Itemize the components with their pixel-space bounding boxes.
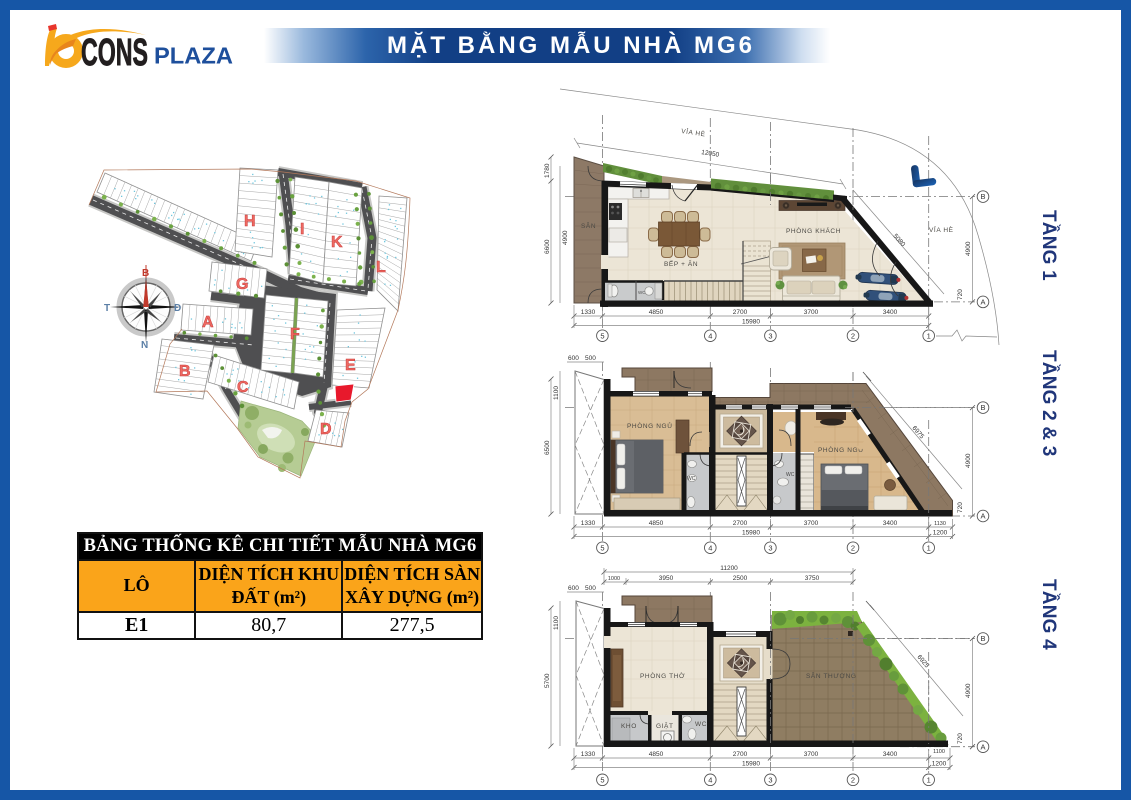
svg-text:4850: 4850 bbox=[649, 751, 664, 758]
svg-text:5700: 5700 bbox=[544, 673, 551, 688]
svg-text:B: B bbox=[179, 363, 191, 380]
svg-text:4: 4 bbox=[708, 331, 712, 340]
svg-text:3750: 3750 bbox=[805, 575, 820, 582]
svg-text:PHÒNG NGỦ: PHÒNG NGỦ bbox=[818, 445, 864, 454]
svg-text:4: 4 bbox=[708, 775, 712, 784]
svg-text:6975: 6975 bbox=[910, 425, 925, 441]
svg-text:4850: 4850 bbox=[649, 520, 664, 527]
svg-text:1130: 1130 bbox=[934, 521, 946, 527]
svg-text:VỈA HÈ: VỈA HÈ bbox=[929, 225, 954, 234]
svg-text:600: 600 bbox=[568, 355, 579, 362]
svg-text:1200: 1200 bbox=[932, 761, 947, 768]
svg-text:TẦNG 4: TẦNG 4 bbox=[1038, 579, 1060, 650]
svg-text:3700: 3700 bbox=[804, 309, 819, 316]
svg-text:3400: 3400 bbox=[883, 751, 898, 758]
svg-text:500: 500 bbox=[585, 585, 596, 592]
svg-text:3700: 3700 bbox=[804, 520, 819, 527]
svg-text:4: 4 bbox=[708, 543, 712, 552]
svg-text:1330: 1330 bbox=[581, 309, 596, 316]
svg-text:T: T bbox=[104, 303, 110, 314]
svg-text:PHÒNG THỜ: PHÒNG THỜ bbox=[640, 671, 685, 680]
svg-text:2: 2 bbox=[851, 331, 855, 340]
svg-text:GIẶT: GIẶT bbox=[656, 721, 674, 730]
svg-text:3: 3 bbox=[768, 331, 772, 340]
svg-text:KHO: KHO bbox=[621, 723, 637, 730]
svg-text:WC: WC bbox=[687, 476, 696, 482]
svg-text:15980: 15980 bbox=[742, 761, 760, 768]
svg-text:5: 5 bbox=[600, 543, 604, 552]
svg-text:SÂN: SÂN bbox=[581, 221, 596, 230]
svg-text:L: L bbox=[376, 259, 386, 276]
svg-text:4850: 4850 bbox=[649, 309, 664, 316]
svg-text:1: 1 bbox=[927, 543, 931, 552]
svg-text:600: 600 bbox=[568, 585, 579, 592]
svg-text:PHÒNG NGỦ: PHÒNG NGỦ bbox=[627, 421, 673, 430]
svg-text:N: N bbox=[141, 340, 148, 351]
svg-text:4900: 4900 bbox=[965, 453, 972, 468]
svg-text:3400: 3400 bbox=[883, 520, 898, 527]
svg-text:500: 500 bbox=[585, 355, 596, 362]
svg-text:PHÒNG KHÁCH: PHÒNG KHÁCH bbox=[786, 226, 841, 235]
svg-text:1330: 1330 bbox=[581, 751, 596, 758]
svg-text:720: 720 bbox=[957, 502, 964, 513]
svg-text:2700: 2700 bbox=[733, 309, 748, 316]
svg-text:5: 5 bbox=[600, 331, 604, 340]
svg-text:1330: 1330 bbox=[581, 520, 596, 527]
svg-text:1100: 1100 bbox=[553, 616, 560, 630]
svg-text:B: B bbox=[142, 268, 149, 279]
svg-text:VỈA HÈ: VỈA HÈ bbox=[681, 126, 707, 138]
svg-text:WC: WC bbox=[786, 472, 795, 478]
svg-text:1200: 1200 bbox=[933, 530, 948, 537]
svg-text:3: 3 bbox=[768, 775, 772, 784]
svg-text:A: A bbox=[980, 742, 985, 751]
svg-text:WC: WC bbox=[695, 721, 707, 728]
svg-text:1: 1 bbox=[927, 775, 931, 784]
svg-text:E: E bbox=[345, 357, 356, 374]
svg-text:SÂN THƯỢNG: SÂN THƯỢNG bbox=[806, 671, 857, 680]
svg-text:3: 3 bbox=[768, 543, 772, 552]
svg-text:1000: 1000 bbox=[608, 576, 620, 582]
svg-text:2700: 2700 bbox=[733, 751, 748, 758]
svg-text:B: B bbox=[980, 192, 985, 201]
svg-text:3400: 3400 bbox=[883, 309, 898, 316]
svg-text:15980: 15980 bbox=[742, 530, 760, 537]
svg-text:Đ: Đ bbox=[174, 303, 181, 314]
svg-text:5: 5 bbox=[600, 775, 604, 784]
svg-text:WC: WC bbox=[638, 290, 646, 295]
svg-text:6500: 6500 bbox=[544, 440, 551, 455]
svg-text:2700: 2700 bbox=[733, 520, 748, 527]
svg-text:D: D bbox=[320, 421, 332, 438]
svg-text:H: H bbox=[244, 213, 256, 230]
svg-text:1100: 1100 bbox=[553, 386, 560, 400]
svg-text:4900: 4900 bbox=[965, 683, 972, 698]
svg-text:A: A bbox=[202, 314, 214, 331]
svg-text:A: A bbox=[980, 298, 985, 307]
svg-text:C: C bbox=[237, 379, 249, 396]
svg-text:1100: 1100 bbox=[933, 749, 945, 755]
svg-text:B: B bbox=[980, 634, 985, 643]
svg-text:720: 720 bbox=[957, 733, 964, 744]
svg-text:G: G bbox=[236, 276, 248, 293]
svg-text:2: 2 bbox=[851, 543, 855, 552]
svg-text:2500: 2500 bbox=[733, 575, 748, 582]
svg-text:2: 2 bbox=[851, 775, 855, 784]
svg-text:TẦNG 2 & 3: TẦNG 2 & 3 bbox=[1038, 350, 1060, 457]
svg-text:11200: 11200 bbox=[720, 565, 738, 572]
svg-text:K: K bbox=[331, 234, 343, 251]
svg-text:15980: 15980 bbox=[742, 319, 760, 326]
svg-text:B: B bbox=[980, 403, 985, 412]
svg-text:720: 720 bbox=[957, 289, 964, 300]
svg-text:A: A bbox=[980, 512, 985, 521]
svg-text:I: I bbox=[300, 221, 304, 238]
svg-text:TẦNG 1: TẦNG 1 bbox=[1038, 210, 1060, 281]
svg-text:4900: 4900 bbox=[562, 230, 569, 245]
svg-text:3700: 3700 bbox=[804, 751, 819, 758]
svg-text:6600: 6600 bbox=[544, 239, 551, 254]
svg-text:3950: 3950 bbox=[659, 575, 674, 582]
svg-text:1780: 1780 bbox=[544, 163, 551, 178]
svg-text:1: 1 bbox=[927, 331, 931, 340]
svg-text:4900: 4900 bbox=[965, 241, 972, 256]
svg-text:F: F bbox=[290, 326, 300, 343]
